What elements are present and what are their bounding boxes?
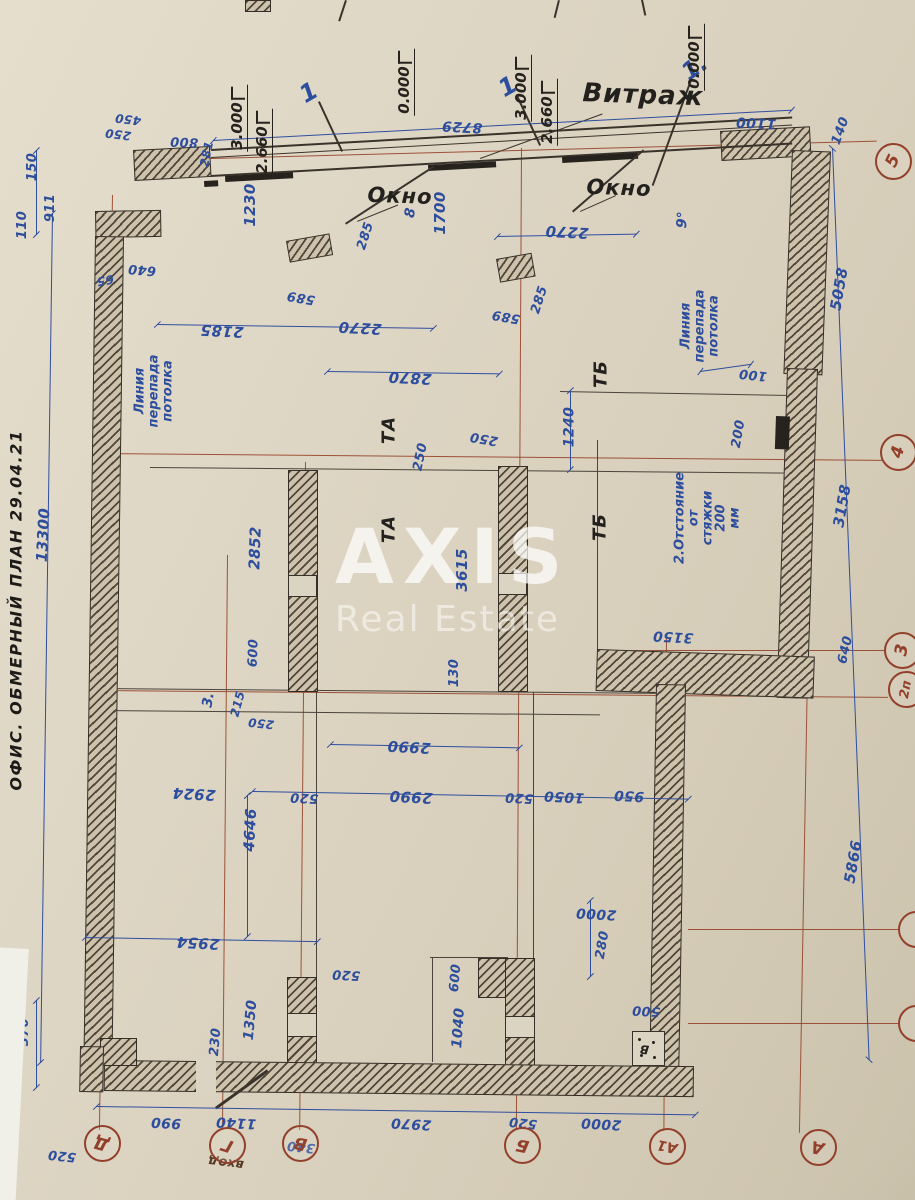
dimension-label: 215: [228, 690, 247, 719]
wall-connector-box: [287, 1013, 317, 1037]
dimension-label: 520: [47, 1147, 77, 1164]
dimension-label: 250: [469, 429, 499, 447]
wall-segment: [83, 236, 124, 1066]
axis-circle-2п: 2п: [888, 671, 915, 708]
axis-circle-label: А1: [655, 1136, 678, 1156]
window-sill-bar: [775, 416, 790, 449]
axis-circle-partial: [898, 1005, 915, 1042]
dimension-label: 950: [613, 787, 644, 803]
dimension-label: 450: [114, 111, 142, 127]
axis-line: [688, 929, 900, 930]
wall-segment: [478, 958, 508, 998]
drawing-line: [211, 143, 792, 177]
dimension-line: [497, 234, 637, 238]
dimension-label: 130: [448, 659, 462, 687]
dimension-label: 520: [331, 966, 360, 981]
dimension-label: 2000: [580, 1115, 621, 1132]
dimension-label: 589: [491, 307, 521, 325]
drawing-line: [338, 0, 347, 22]
dimension-label: 1700: [433, 191, 449, 234]
wall-connector-box: [632, 1031, 665, 1066]
axis-circle-label: 5: [881, 151, 904, 170]
room-line: [150, 467, 790, 474]
room-line: [316, 692, 317, 978]
watermark-subtitle: Real Estate: [335, 599, 571, 640]
axis-circle-5: 5: [875, 143, 912, 180]
axis-circle-А1: А1: [649, 1128, 686, 1165]
drawing-line: [345, 166, 434, 225]
dimension-label: 2000: [575, 905, 616, 922]
dimension-label: 150: [26, 153, 40, 181]
dimension-label: 589: [286, 288, 316, 306]
elevation-mark: 0.000: [685, 23, 705, 90]
elevation-mark: 3.000: [228, 84, 248, 151]
elevation-mark: 2.660: [253, 108, 273, 175]
elevation-mark: 3.000: [512, 54, 532, 121]
wall-segment: [133, 146, 212, 181]
dimension-label: 1350: [242, 999, 260, 1041]
drawing-line: [554, 0, 560, 18]
dimension-label: 5058: [828, 266, 851, 311]
room-line: [560, 391, 798, 396]
axis-circle-Б: Б: [504, 1127, 541, 1164]
ceiling-mark-tb: ТБ: [591, 360, 610, 388]
dimension-label: 2924: [172, 784, 216, 802]
axis-circle-label: Б: [514, 1134, 531, 1156]
window-sill-bar: [204, 180, 218, 187]
axis-circle-label: В: [292, 1132, 309, 1154]
drawing-line: [641, 0, 646, 16]
dimension-line: [590, 900, 591, 977]
axis-circle-label: А: [809, 1136, 826, 1158]
dimension-label: 2852: [247, 526, 264, 570]
dimension-label: 600: [247, 639, 262, 668]
room-line: [432, 957, 433, 1062]
dimension-label: 2870: [388, 368, 432, 386]
dimension-line: [330, 744, 520, 749]
ceiling-mark-ta: ТА: [379, 515, 398, 543]
ceiling-mark-ta: ТА: [379, 416, 398, 444]
dimension-label: 1040: [450, 1007, 468, 1049]
dimension-label: 3615: [455, 548, 471, 591]
callout-8: 8: [403, 207, 419, 219]
wall-segment: [496, 253, 536, 283]
wall-segment: [286, 233, 333, 262]
axis-circle-partial: [898, 911, 915, 948]
dimension-label: 110: [16, 211, 30, 239]
axis-circle-label: Г: [219, 1134, 235, 1156]
dimension-label: 600: [448, 963, 464, 992]
ceiling-drop-note: Линия перепада потолка: [679, 290, 720, 363]
axis-circle-А: А: [800, 1129, 837, 1166]
room-line: [100, 710, 600, 716]
dimension-label: 13300: [35, 508, 54, 563]
callout-1: 1.: [677, 50, 713, 86]
dimension-label: 3150: [652, 628, 693, 645]
axis-line: [222, 555, 228, 1130]
wall-segment: [95, 210, 161, 238]
axis-circle-label: Д: [92, 1131, 112, 1154]
wall-segment: [100, 1038, 137, 1066]
wall-connector-box: [288, 575, 317, 597]
wall-connector-box: [498, 573, 527, 595]
dimension-line: [700, 364, 752, 373]
elevation-mark: 0.000: [395, 48, 415, 115]
callout-3: 3.: [200, 691, 217, 708]
dimension-line: [570, 390, 571, 470]
dimension-line: [40, 213, 53, 1063]
dimension-label: 250: [247, 715, 274, 730]
dimension-line: [213, 110, 792, 142]
dimension-label: 990: [150, 1114, 181, 1130]
dimension-label: 285: [355, 220, 377, 251]
dimension-label: 100: [738, 366, 768, 383]
dimension-label: 640: [127, 261, 156, 277]
dimension-label: 2270: [545, 222, 589, 240]
dimension-label: 200: [730, 419, 748, 449]
dimension-line: [327, 371, 500, 375]
wall-segment: [596, 649, 815, 699]
dimension-line: [36, 150, 37, 235]
wall-segment: [783, 150, 831, 375]
wall-segment: [79, 1046, 104, 1092]
screed-offset-note: 2.Отстояние от стяжки 200 мм: [674, 472, 743, 564]
drawing-line: [211, 125, 792, 159]
dimension-label: 2185: [200, 321, 244, 339]
axis-circle-4: 4: [880, 434, 915, 471]
dimension-line: [96, 1106, 696, 1116]
ceiling-drop-note: Линия перепада потолка: [133, 355, 174, 428]
window-label: Окно: [586, 176, 652, 201]
axis-circle-Г: Г: [209, 1127, 246, 1164]
axis-circle-Д: Д: [84, 1125, 121, 1162]
switchboard-dots: [638, 1038, 641, 1041]
ceiling-mark-tb: ТБ: [590, 513, 609, 541]
dimension-label: 250: [104, 126, 132, 142]
dimension-label: 280: [594, 930, 612, 960]
room-line: [533, 692, 534, 958]
watermark-brand: AXIS: [335, 519, 571, 595]
axis-circle-label: 4: [887, 444, 909, 461]
axis-circle-В: В: [282, 1125, 319, 1162]
floor-plan-photo: ОФИС. ОБМЕРНЫЙ ПЛАН 29.04.2113300ВитражО…: [0, 0, 915, 1200]
photo-edge: [0, 947, 29, 1200]
dimension-line: [85, 937, 318, 942]
dimension-line: [832, 148, 870, 1060]
axis-circle-label: 3: [891, 642, 913, 657]
watermark: AXIS Real Estate: [335, 519, 571, 640]
wall-connector-box: [505, 1016, 535, 1038]
dimension-line: [247, 795, 248, 937]
dimension-label: 1230: [243, 183, 259, 226]
door-opening: [196, 1056, 216, 1096]
dimension-line: [252, 791, 689, 800]
axis-circle-3: 3: [884, 632, 915, 669]
dimension-line: [36, 1000, 37, 1088]
dimension-label: 2990: [389, 787, 433, 805]
dimension-label: 2954: [176, 933, 220, 951]
axis-line: [95, 453, 882, 461]
wall-segment: [104, 1060, 694, 1097]
callout-9deg: 9°: [675, 211, 691, 229]
dimension-line: [157, 324, 434, 329]
dimension-label: 4646: [242, 808, 260, 852]
axis-circle-label: 2п: [897, 679, 915, 699]
wall-segment: [245, 0, 271, 12]
plan-title: ОФИС. ОБМЕРНЫЙ ПЛАН 29.04.21: [9, 429, 26, 790]
dimension-label: 2970: [390, 1115, 431, 1132]
dimension-label: 3158: [831, 483, 854, 528]
dimension-label: 285: [529, 284, 551, 315]
